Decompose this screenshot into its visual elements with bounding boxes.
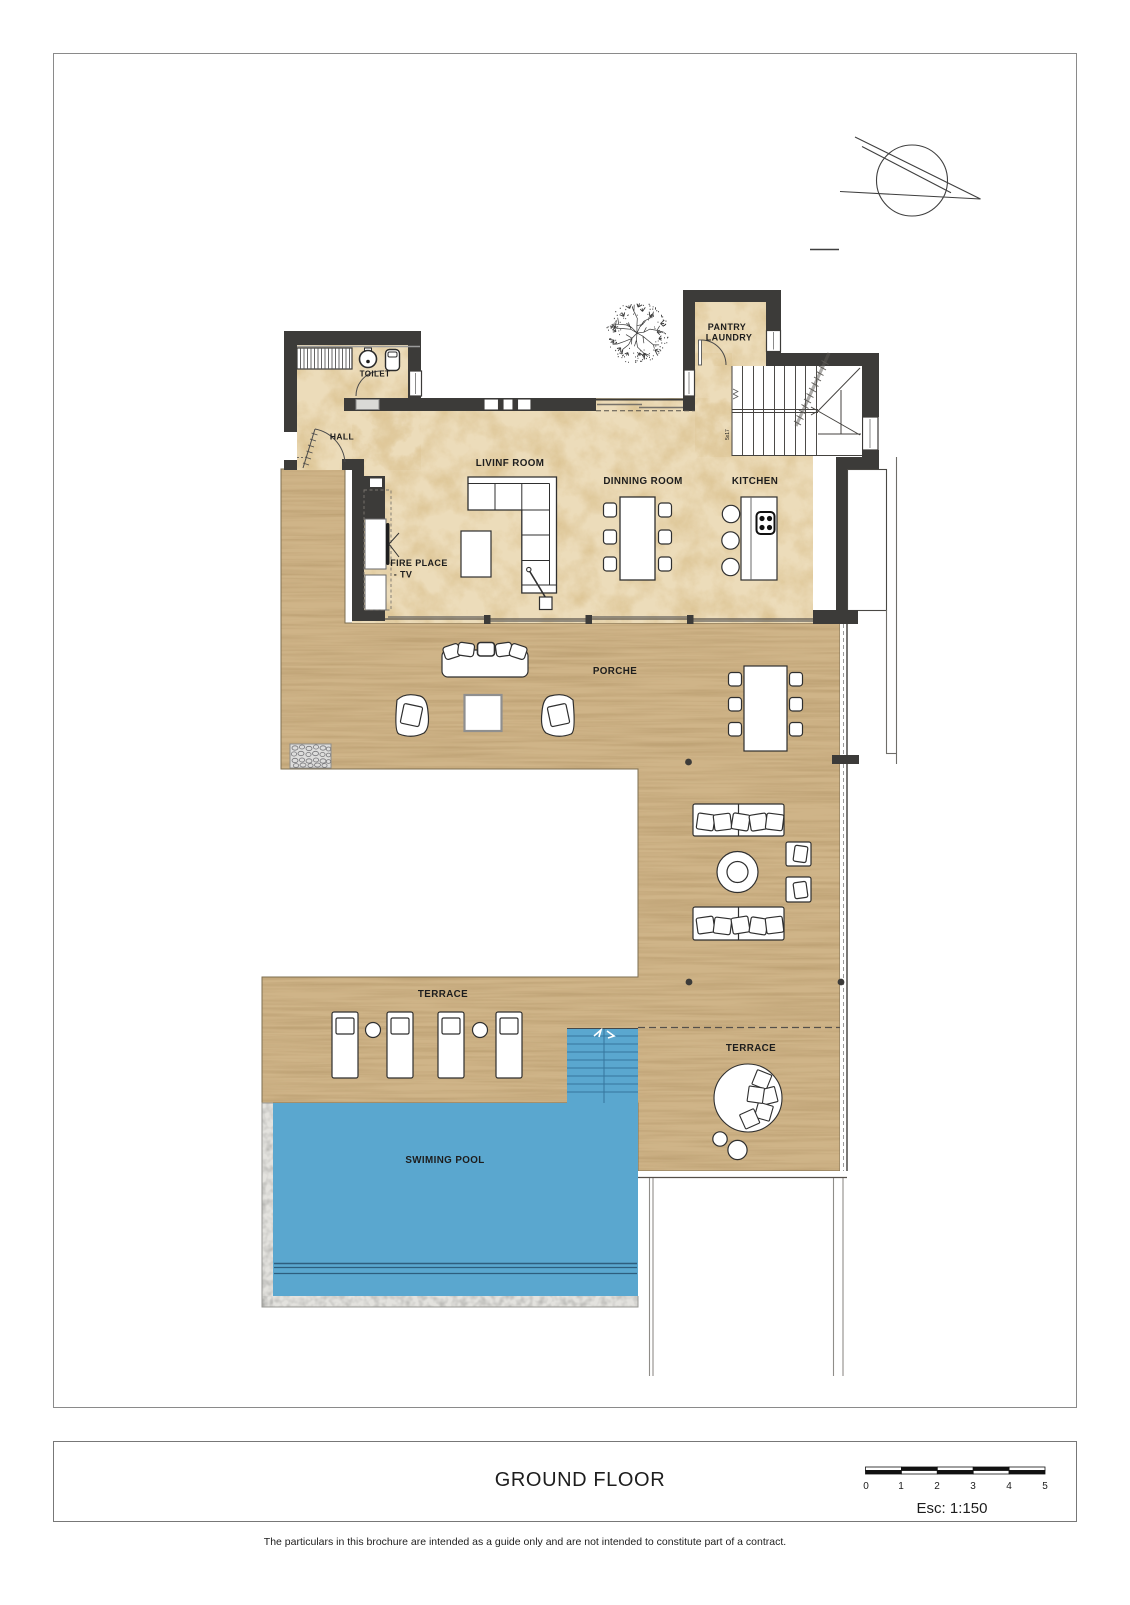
svg-text:2: 2: [934, 1481, 940, 1492]
svg-text:SWIMING POOL: SWIMING POOL: [405, 1155, 484, 1166]
svg-text:0: 0: [863, 1481, 869, 1492]
svg-text:4: 4: [1006, 1481, 1012, 1492]
svg-text:DINNING ROOM: DINNING ROOM: [603, 476, 682, 487]
svg-text:3: 3: [970, 1481, 976, 1492]
svg-text:5: 5: [1042, 1481, 1048, 1492]
svg-text:PANTRY: PANTRY: [708, 322, 746, 332]
svg-text:- TV: - TV: [394, 570, 413, 580]
svg-text:PORCHE: PORCHE: [593, 666, 637, 677]
svg-text:Esc: 1:150: Esc: 1:150: [917, 1500, 988, 1517]
svg-text:KITCHEN: KITCHEN: [732, 476, 778, 487]
svg-text:The particulars in this brochu: The particulars in this brochure are int…: [264, 1536, 786, 1548]
svg-text:LIVINF ROOM: LIVINF ROOM: [476, 458, 545, 469]
svg-text:TOILET: TOILET: [360, 370, 391, 379]
svg-text:GROUND FLOOR: GROUND FLOOR: [495, 1469, 666, 1491]
svg-text:TERRACE: TERRACE: [418, 989, 468, 1000]
svg-text:HALL: HALL: [330, 432, 354, 442]
svg-text:1: 1: [898, 1481, 904, 1492]
svg-text:5x17: 5x17: [725, 429, 731, 440]
svg-text:TERRACE: TERRACE: [726, 1043, 776, 1054]
svg-text:FIRE PLACE: FIRE PLACE: [390, 558, 448, 568]
svg-text:LAUNDRY: LAUNDRY: [706, 333, 752, 343]
